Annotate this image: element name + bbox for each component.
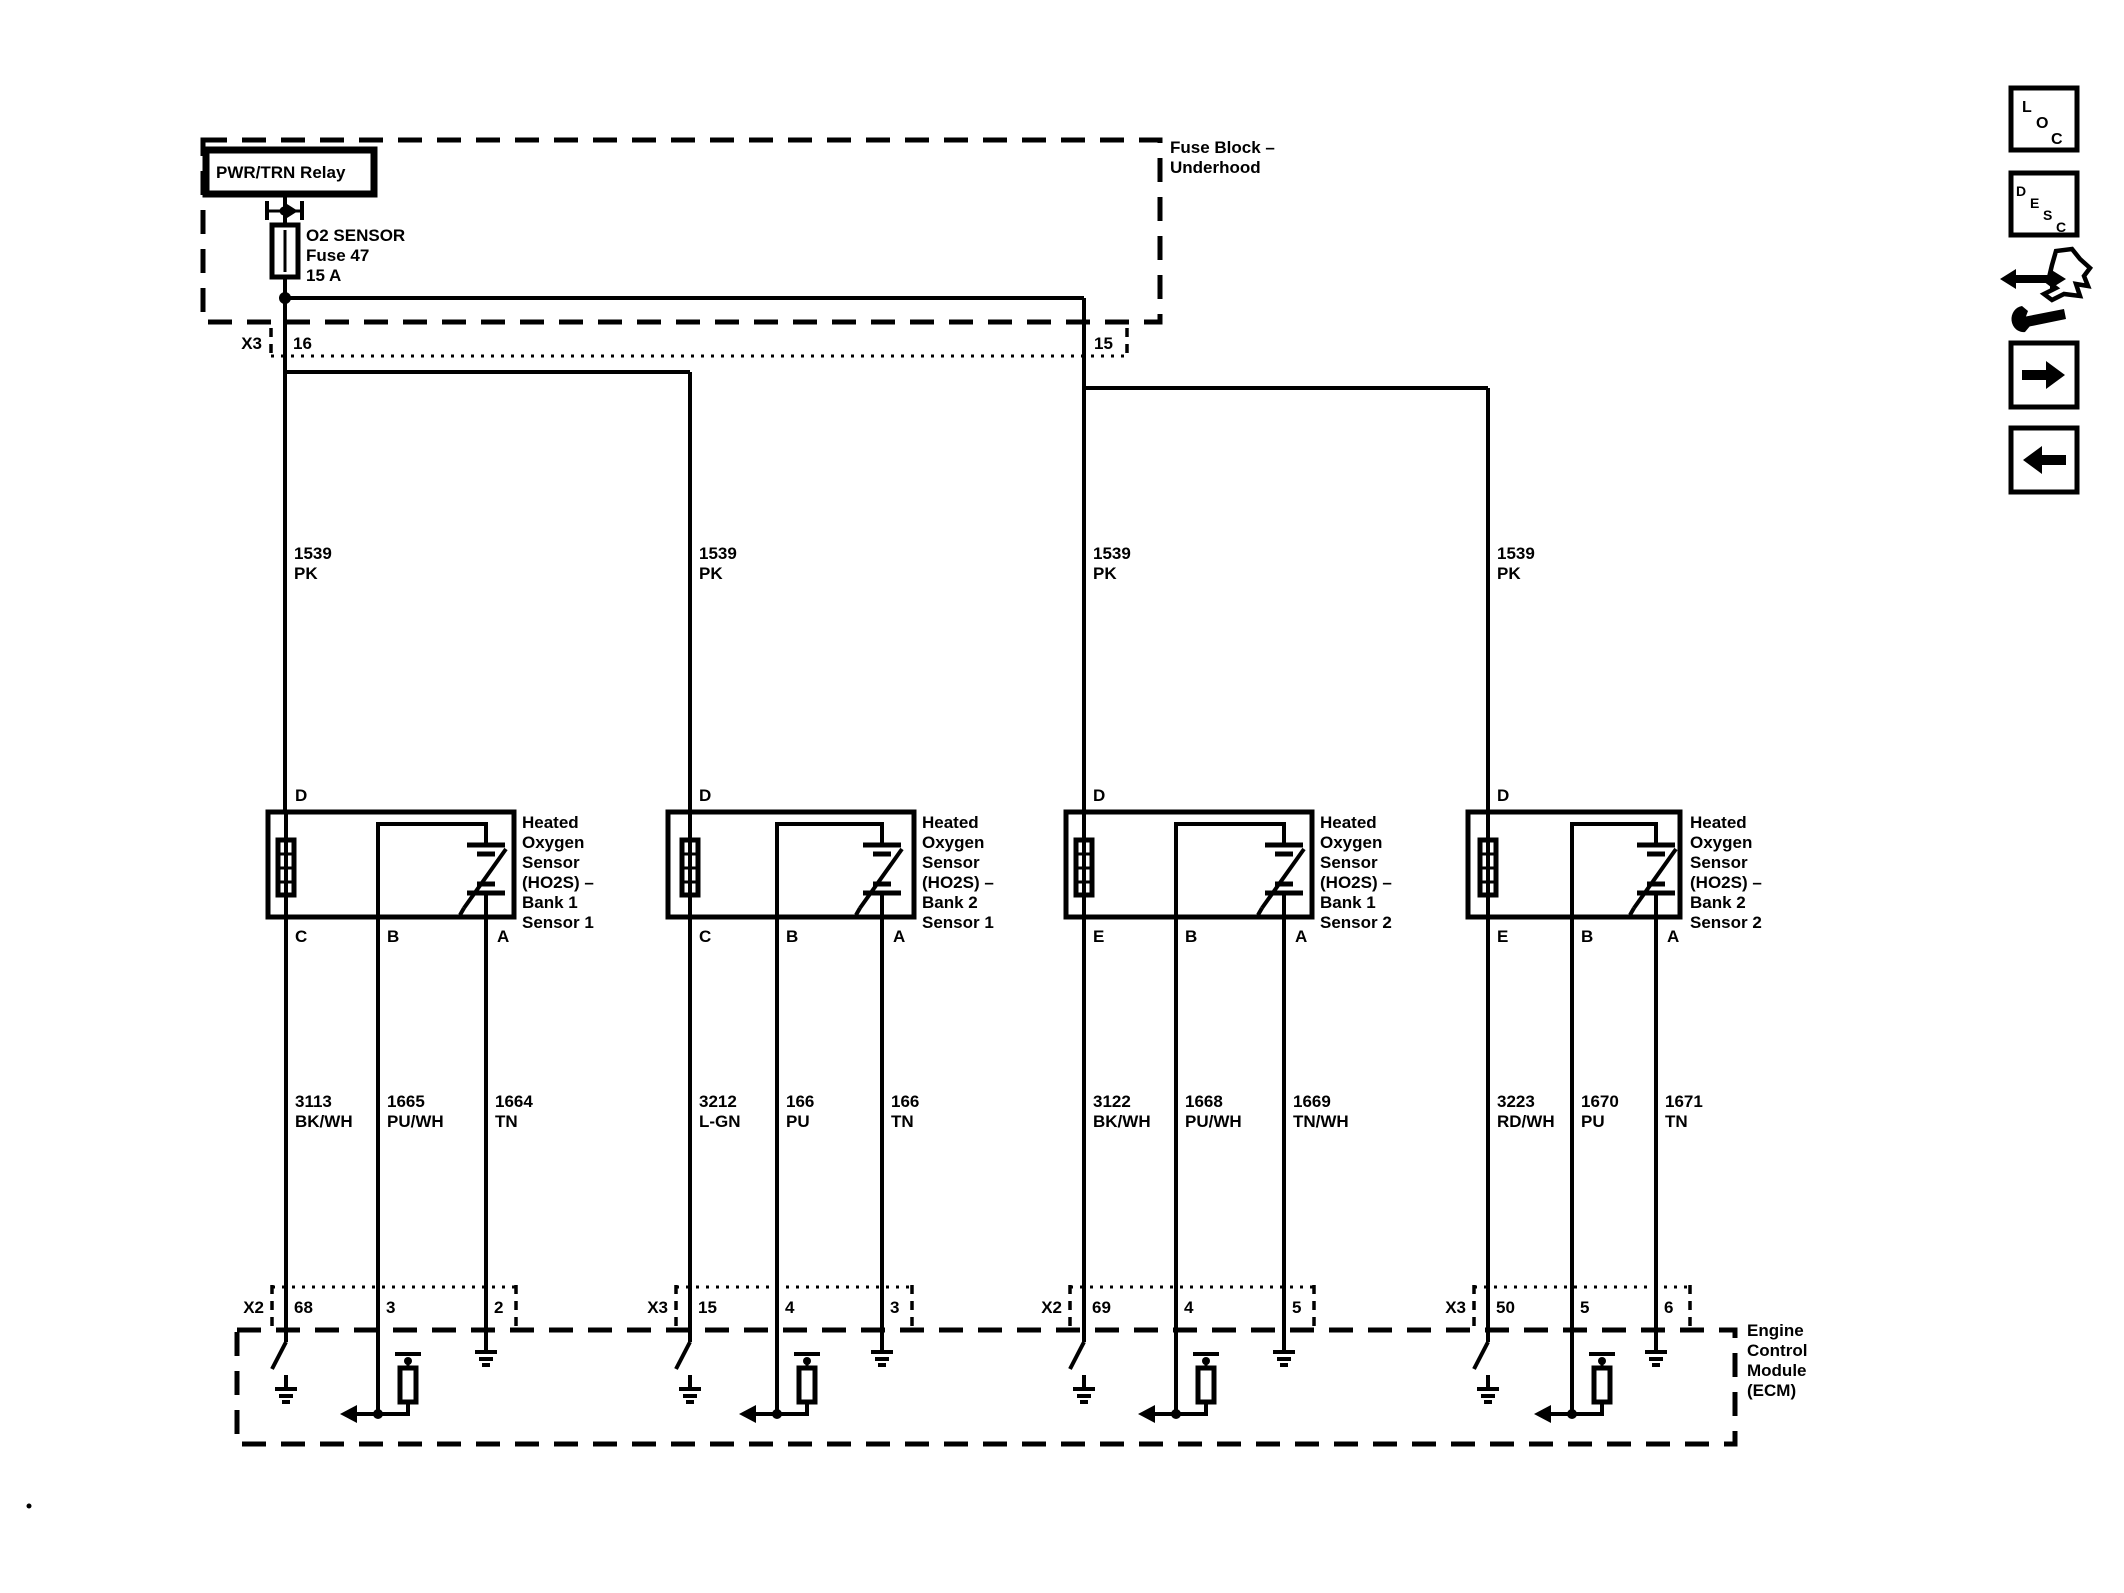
sensor-box-3: D E B A Heated Oxygen Sensor (HO2S) – Ba… [1066,786,1392,1414]
wire-label: 3113 [295,1092,332,1111]
sense-cell-icon [856,845,902,915]
switch-blade-icon [1474,1342,1488,1369]
sense-cell-icon [460,845,506,915]
ecm-pin: 69 [1092,1298,1111,1317]
wire-label: 1668 [1185,1092,1223,1111]
ecm-pin: 6 [1664,1298,1673,1317]
circuit-1539-a: 1539 [294,544,332,563]
sensor3-label: (HO2S) – [1320,873,1392,892]
ecm-pin: 5 [1580,1298,1589,1317]
sensor3-label: Heated [1320,813,1377,832]
ground-icon [1273,1352,1295,1365]
ecm-pin: 2 [494,1298,503,1317]
ecm-connector-2: X3 15 4 3 [647,1285,912,1423]
sense-cell-icon [1258,845,1304,915]
fuse-block-connector: X3 16 15 [241,328,1127,356]
arrow-right-button[interactable] [2011,343,2077,407]
fuse-label-1: O2 SENSOR [306,226,405,245]
ecm-conn-name: X3 [647,1298,668,1317]
sensor4-label: (HO2S) – [1690,873,1762,892]
sensor1-label: (HO2S) – [522,873,594,892]
pin-letter-d: D [699,786,711,805]
wire-label: BK/WH [1093,1112,1151,1131]
pin-letter-e: E [1093,927,1104,946]
ecm-label: Engine [1747,1321,1804,1340]
sensor4-label: Sensor [1690,853,1748,872]
wire-label: PU [1581,1112,1605,1131]
wire-label: TN [495,1112,518,1131]
pin-letter-d: D [1093,786,1105,805]
ground-icon [679,1375,701,1402]
ecm-conn-name: X2 [243,1298,264,1317]
fuse-block-title-1: Fuse Block – [1170,138,1275,157]
ground-icon [1645,1352,1667,1365]
ecm-pin: 5 [1292,1298,1301,1317]
sensor2-label: Sensor [922,853,980,872]
circuit-1539-b: 1539 [699,544,737,563]
wire-label: 1665 [387,1092,425,1111]
ecm-conn-name: X2 [1041,1298,1062,1317]
color-pk-c: PK [1093,564,1117,583]
pin-letter-c: C [699,927,711,946]
color-pk-d: PK [1497,564,1521,583]
wire-label: 166 [891,1092,919,1111]
resistor-icon [1594,1368,1610,1402]
sensor2-label: Oxygen [922,833,984,852]
ho2s-wiring-diagram: Fuse Block – Underhood PWR/TRN Relay O2 … [0,0,2124,1593]
color-pk-a: PK [294,564,318,583]
signal-arrow-icon [1534,1405,1551,1423]
wire-label: 1671 [1665,1092,1703,1111]
pin-letter-a: A [497,927,509,946]
ground-icon [1073,1375,1095,1402]
wire-label: 3223 [1497,1092,1535,1111]
wire-label: PU/WH [387,1112,444,1131]
wire-label: RD/WH [1497,1112,1555,1131]
desc-letter: S [2043,207,2052,223]
ground-icon [871,1352,893,1365]
feed-circuit-labels: 1539 PK 1539 PK 1539 PK 1539 PK [294,544,1535,583]
arrow-left-button[interactable] [2011,428,2077,492]
pin-letter-d: D [1497,786,1509,805]
ecm-pin: 3 [386,1298,395,1317]
sensor-box-2: D C B A Heated Oxygen Sensor (HO2S) – Ba… [668,786,994,1414]
fuse-label-3: 15 A [306,266,341,285]
color-pk-b: PK [699,564,723,583]
wire-label: PU/WH [1185,1112,1242,1131]
wire-label: 1664 [495,1092,533,1111]
sensor2-label: (HO2S) – [922,873,994,892]
hand-arrow-icon[interactable] [2000,249,2090,332]
pin-15-label: 15 [1094,334,1113,353]
loc-button[interactable]: L O C [2011,88,2077,150]
sensor4-label: Sensor 2 [1690,913,1762,932]
sensor1-label: Sensor [522,853,580,872]
ecm-pin: 4 [1184,1298,1194,1317]
ecm-conn-name: X3 [1445,1298,1466,1317]
pin-letter-c: C [295,927,307,946]
wire-label: TN [1665,1112,1688,1131]
wire-label: BK/WH [295,1112,353,1131]
pwr-trn-relay-label: PWR/TRN Relay [216,163,346,182]
resistor-icon [799,1368,815,1402]
connector-x3-label: X3 [241,334,262,353]
wire-label: 3122 [1093,1092,1131,1111]
signal-arrow-icon [340,1405,357,1423]
switch-blade-icon [272,1342,286,1369]
pin-letter-b: B [1581,927,1593,946]
resistor-icon [1198,1368,1214,1402]
signal-arrow-icon [1138,1405,1155,1423]
arrow-right-icon [2022,361,2065,389]
wire-label: TN/WH [1293,1112,1349,1131]
sensor1-label: Bank 1 [522,893,578,912]
ecm-connector-4: X3 50 5 6 [1445,1285,1690,1423]
sensor3-label: Sensor [1320,853,1378,872]
sensor-box-4: D E B A Heated Oxygen Sensor (HO2S) – Ba… [1468,786,1762,1414]
ecm-boundary [237,1330,1735,1444]
sensor2-label: Bank 2 [922,893,978,912]
sensor4-label: Bank 2 [1690,893,1746,912]
loc-letter: L [2022,99,2032,116]
circuit-1539-d: 1539 [1497,544,1535,563]
wire-label: 1670 [1581,1092,1619,1111]
pin-letter-e: E [1497,927,1508,946]
pin-letter-b: B [786,927,798,946]
ecm-pin: 50 [1496,1298,1515,1317]
pin-letter-a: A [1667,927,1679,946]
ecm-pin: 3 [890,1298,899,1317]
ecm-label: (ECM) [1747,1381,1796,1400]
pin-letter-b: B [1185,927,1197,946]
ecm-label: Module [1747,1361,1807,1380]
ecm-pin: 68 [294,1298,313,1317]
fuse-label-2: Fuse 47 [306,246,369,265]
pin-letter-d: D [295,786,307,805]
sensor1-label: Oxygen [522,833,584,852]
wire-label: 166 [786,1092,814,1111]
sensor4-label: Oxygen [1690,833,1752,852]
ground-icon [275,1375,297,1402]
page-mark [27,1504,32,1509]
sense-cell-icon [1630,845,1676,915]
o2-sensor-fuse [272,225,298,277]
ground-icon [475,1352,497,1365]
switch-blade-icon [1070,1342,1084,1369]
ecm-pin: 4 [785,1298,795,1317]
sensor3-label: Bank 1 [1320,893,1376,912]
fuse-block-title-2: Underhood [1170,158,1261,177]
sensor2-label: Sensor 1 [922,913,994,932]
fuse-block-underhood: Fuse Block – Underhood PWR/TRN Relay O2 … [203,138,1275,322]
pin-16-label: 16 [293,334,312,353]
wire-label: 3212 [699,1092,737,1111]
wire-label: L-GN [699,1112,741,1131]
sensor-box-1: D C B A Heated Oxygen Sensor (HO2S) – Ba… [268,786,594,1414]
sensor1-label: Heated [522,813,579,832]
sensor1-label: Sensor 1 [522,913,594,932]
wire-label: PU [786,1112,810,1131]
ecm-pin: 15 [698,1298,717,1317]
wire-label: 1669 [1293,1092,1331,1111]
ground-icon [1477,1375,1499,1402]
sensor3-label: Sensor 2 [1320,913,1392,932]
sidebar-nav: L O C D E S C [2000,88,2090,492]
loc-letter: C [2051,131,2063,148]
desc-letter: C [2056,219,2066,235]
loc-letter: O [2036,115,2048,132]
wire-label: TN [891,1112,914,1131]
arrow-left-icon [2023,446,2066,474]
circuit-1539-c: 1539 [1093,544,1131,563]
pin-letter-a: A [1295,927,1307,946]
pin-letter-b: B [387,927,399,946]
desc-letter: E [2030,195,2039,211]
sensor4-label: Heated [1690,813,1747,832]
wiring-diagram-page: Fuse Block – Underhood PWR/TRN Relay O2 … [0,0,2124,1593]
pin-letter-a: A [893,927,905,946]
sensor3-label: Oxygen [1320,833,1382,852]
signal-arrow-icon [739,1405,756,1423]
resistor-icon [400,1368,416,1402]
switch-blade-icon [676,1342,690,1369]
ecm-label: Control [1747,1341,1807,1360]
desc-letter: D [2016,183,2026,199]
sensor2-label: Heated [922,813,979,832]
desc-button[interactable]: D E S C [2011,173,2077,235]
